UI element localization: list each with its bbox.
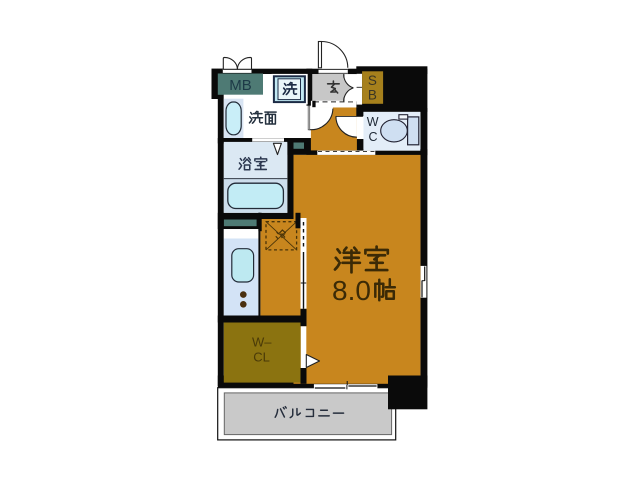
- svg-text:8.0: 8.0: [332, 275, 371, 306]
- svg-text:W: W: [367, 115, 379, 129]
- svg-text:S: S: [368, 73, 377, 88]
- svg-text:B: B: [368, 88, 377, 103]
- svg-text:MB: MB: [229, 77, 252, 94]
- svg-text:CL: CL: [253, 349, 270, 364]
- svg-text:W–: W–: [252, 335, 272, 350]
- svg-text:C: C: [368, 130, 377, 144]
